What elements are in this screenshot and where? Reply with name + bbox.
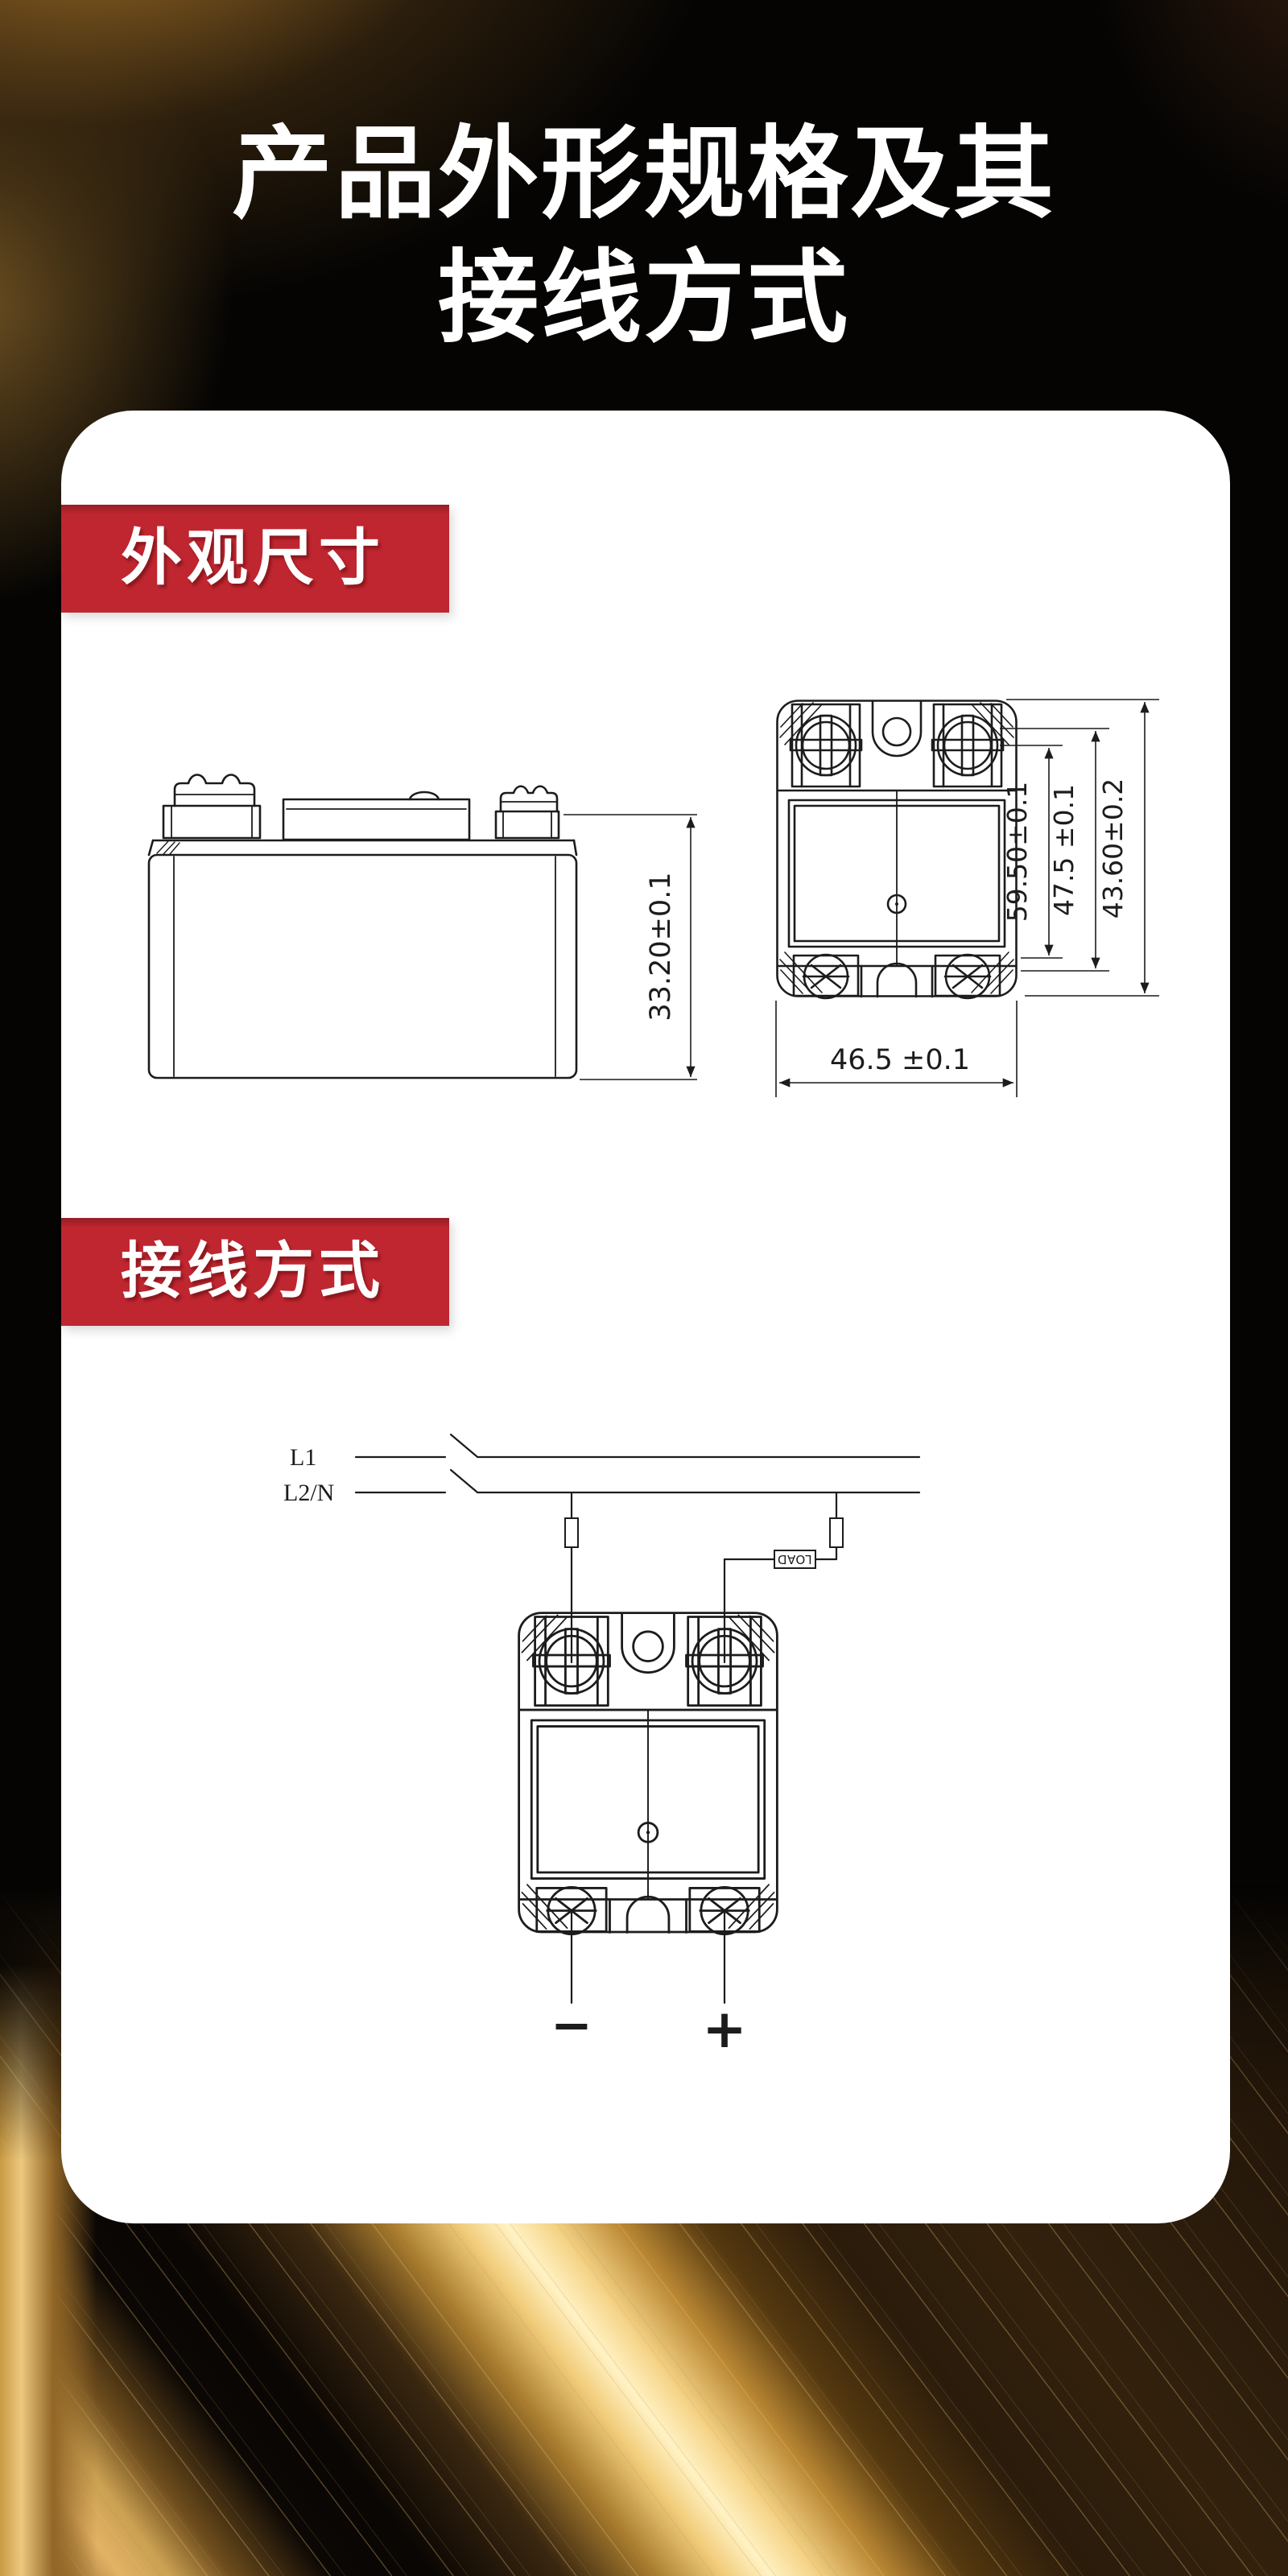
- section-badge-appearance: 外观尺寸: [61, 505, 449, 613]
- dc-plus-terminal-label: +: [702, 1998, 746, 2060]
- content-card: 外观尺寸: [61, 411, 1230, 2223]
- page-title: 产品外形规格及其 接线方式: [0, 113, 1288, 361]
- side-view-body: [149, 775, 576, 1079]
- load-label: LOAD: [777, 1552, 811, 1567]
- section-badge-wiring: 接线方式: [61, 1218, 449, 1326]
- side-view-dimension: [563, 815, 697, 1080]
- wiring-diagram: LOAD L1 L2/N − +: [279, 1433, 971, 2077]
- front-view-middle-height-label: 47.5 ±0.1: [1048, 784, 1080, 916]
- front-view-width-label: 46.5 ±0.1: [830, 1044, 970, 1076]
- side-view-drawing: 33.20±0.1: [132, 704, 712, 1091]
- line1-label: L1: [290, 1444, 316, 1471]
- fuse-symbol-left: [565, 1518, 578, 1547]
- page: 产品外形规格及其 接线方式 外观尺寸: [0, 0, 1288, 2576]
- front-view-inner-height-label: 59.50±0.1: [1001, 782, 1033, 923]
- page-title-line2: 接线方式: [0, 237, 1288, 361]
- front-view-outer-height-label: 43.60±0.2: [1097, 778, 1129, 919]
- line2-label: L2/N: [283, 1480, 334, 1506]
- section-badge-wiring-label: 接线方式: [121, 1237, 385, 1306]
- page-title-line1: 产品外形规格及其: [0, 113, 1288, 237]
- front-view-relay-outline: [778, 701, 1017, 999]
- section-badge-appearance-label: 外观尺寸: [121, 524, 385, 592]
- fuse-symbol-right: [830, 1518, 843, 1547]
- front-view-drawing: 59.50±0.1 47.5 ±0.1 43.60±0.2 46.5 ±0.1: [755, 691, 1190, 1158]
- side-view-height-dimension-label: 33.20±0.1: [645, 872, 677, 1021]
- wiring-relay-outline: [519, 1613, 778, 1934]
- dc-minus-terminal-label: −: [551, 1996, 592, 2054]
